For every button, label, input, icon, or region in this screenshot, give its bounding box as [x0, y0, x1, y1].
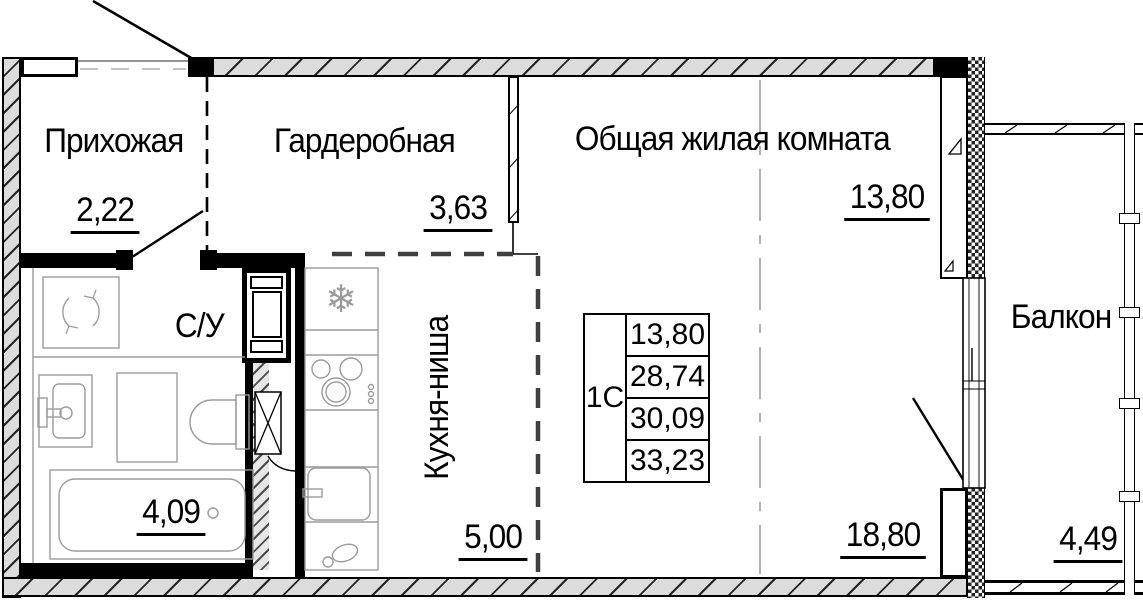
stove-hob [312, 358, 374, 406]
wall-mark-triangle [945, 261, 953, 271]
kitchen-sink [303, 468, 370, 520]
room-label-kitchen-niche: Кухня-ниша [417, 268, 457, 528]
room-label-hallway: Прихожая [14, 123, 214, 160]
area-hallway: 2,22 [45, 192, 165, 234]
vent-duct-x [255, 392, 295, 471]
apartment-type-cell: 1С [585, 315, 627, 481]
table-row: 28,74 [627, 357, 708, 399]
table-row: 33,23 [627, 441, 708, 481]
room-label-wardrobe: Гардеробная [254, 123, 474, 160]
room-label-bathroom: С/У [139, 308, 259, 345]
area-kitchen-niche: 5,00 [433, 519, 553, 561]
room-label-living-room: Общая жилая комната [532, 121, 932, 158]
area-bathroom: 4,09 [111, 494, 231, 536]
area-living-room: 13,80 [827, 179, 947, 221]
floor-plan: ❄ Прихожая 2,22 Гардеробная 3,63 Общая ж… [0, 0, 1143, 600]
table-row: 30,09 [627, 399, 708, 441]
fridge-snowflake-icon: ❄ [325, 279, 357, 321]
balcony-door-swing [913, 398, 967, 486]
bathroom-counter [117, 373, 177, 462]
area-room-zone: 18,80 [823, 517, 943, 559]
toilet [190, 395, 249, 449]
wall-mark-triangle [949, 139, 961, 154]
area-balcony: 4,49 [1028, 521, 1143, 563]
kettle [323, 541, 360, 567]
area-wardrobe: 3,63 [398, 190, 518, 232]
washing-machine [43, 277, 119, 348]
table-row: 13,80 [627, 315, 708, 357]
entry-door-swing [93, 1, 193, 59]
room-label-balcony: Балкон [1000, 299, 1122, 336]
apartment-area-table: 1С 13,80 28,74 30,09 33,23 [583, 313, 710, 483]
balcony-window [963, 278, 985, 488]
bathroom-sink [38, 375, 92, 447]
